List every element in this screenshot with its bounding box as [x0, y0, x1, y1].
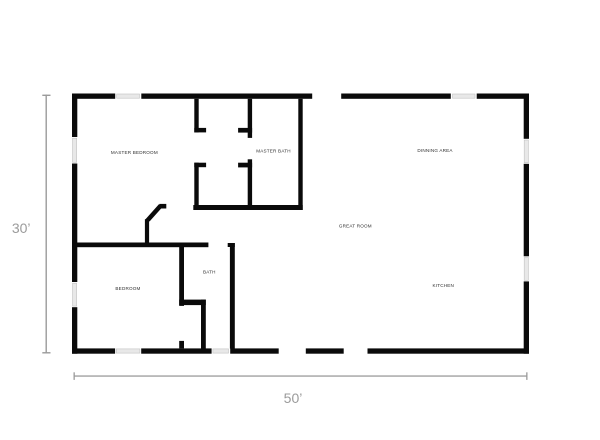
- svg-text:BEDROOM: BEDROOM: [115, 286, 140, 291]
- svg-text:GREAT ROOM: GREAT ROOM: [339, 223, 372, 228]
- svg-text:DINNING AREA: DINNING AREA: [417, 148, 453, 153]
- svg-text:BATH: BATH: [203, 269, 216, 274]
- svg-text:50’: 50’: [284, 390, 303, 406]
- svg-text:MASTER BATH: MASTER BATH: [256, 148, 291, 153]
- svg-text:KITCHEN: KITCHEN: [433, 283, 455, 288]
- svg-text:30’: 30’: [12, 220, 31, 236]
- svg-text:MASTER BEDROOM: MASTER BEDROOM: [111, 150, 158, 155]
